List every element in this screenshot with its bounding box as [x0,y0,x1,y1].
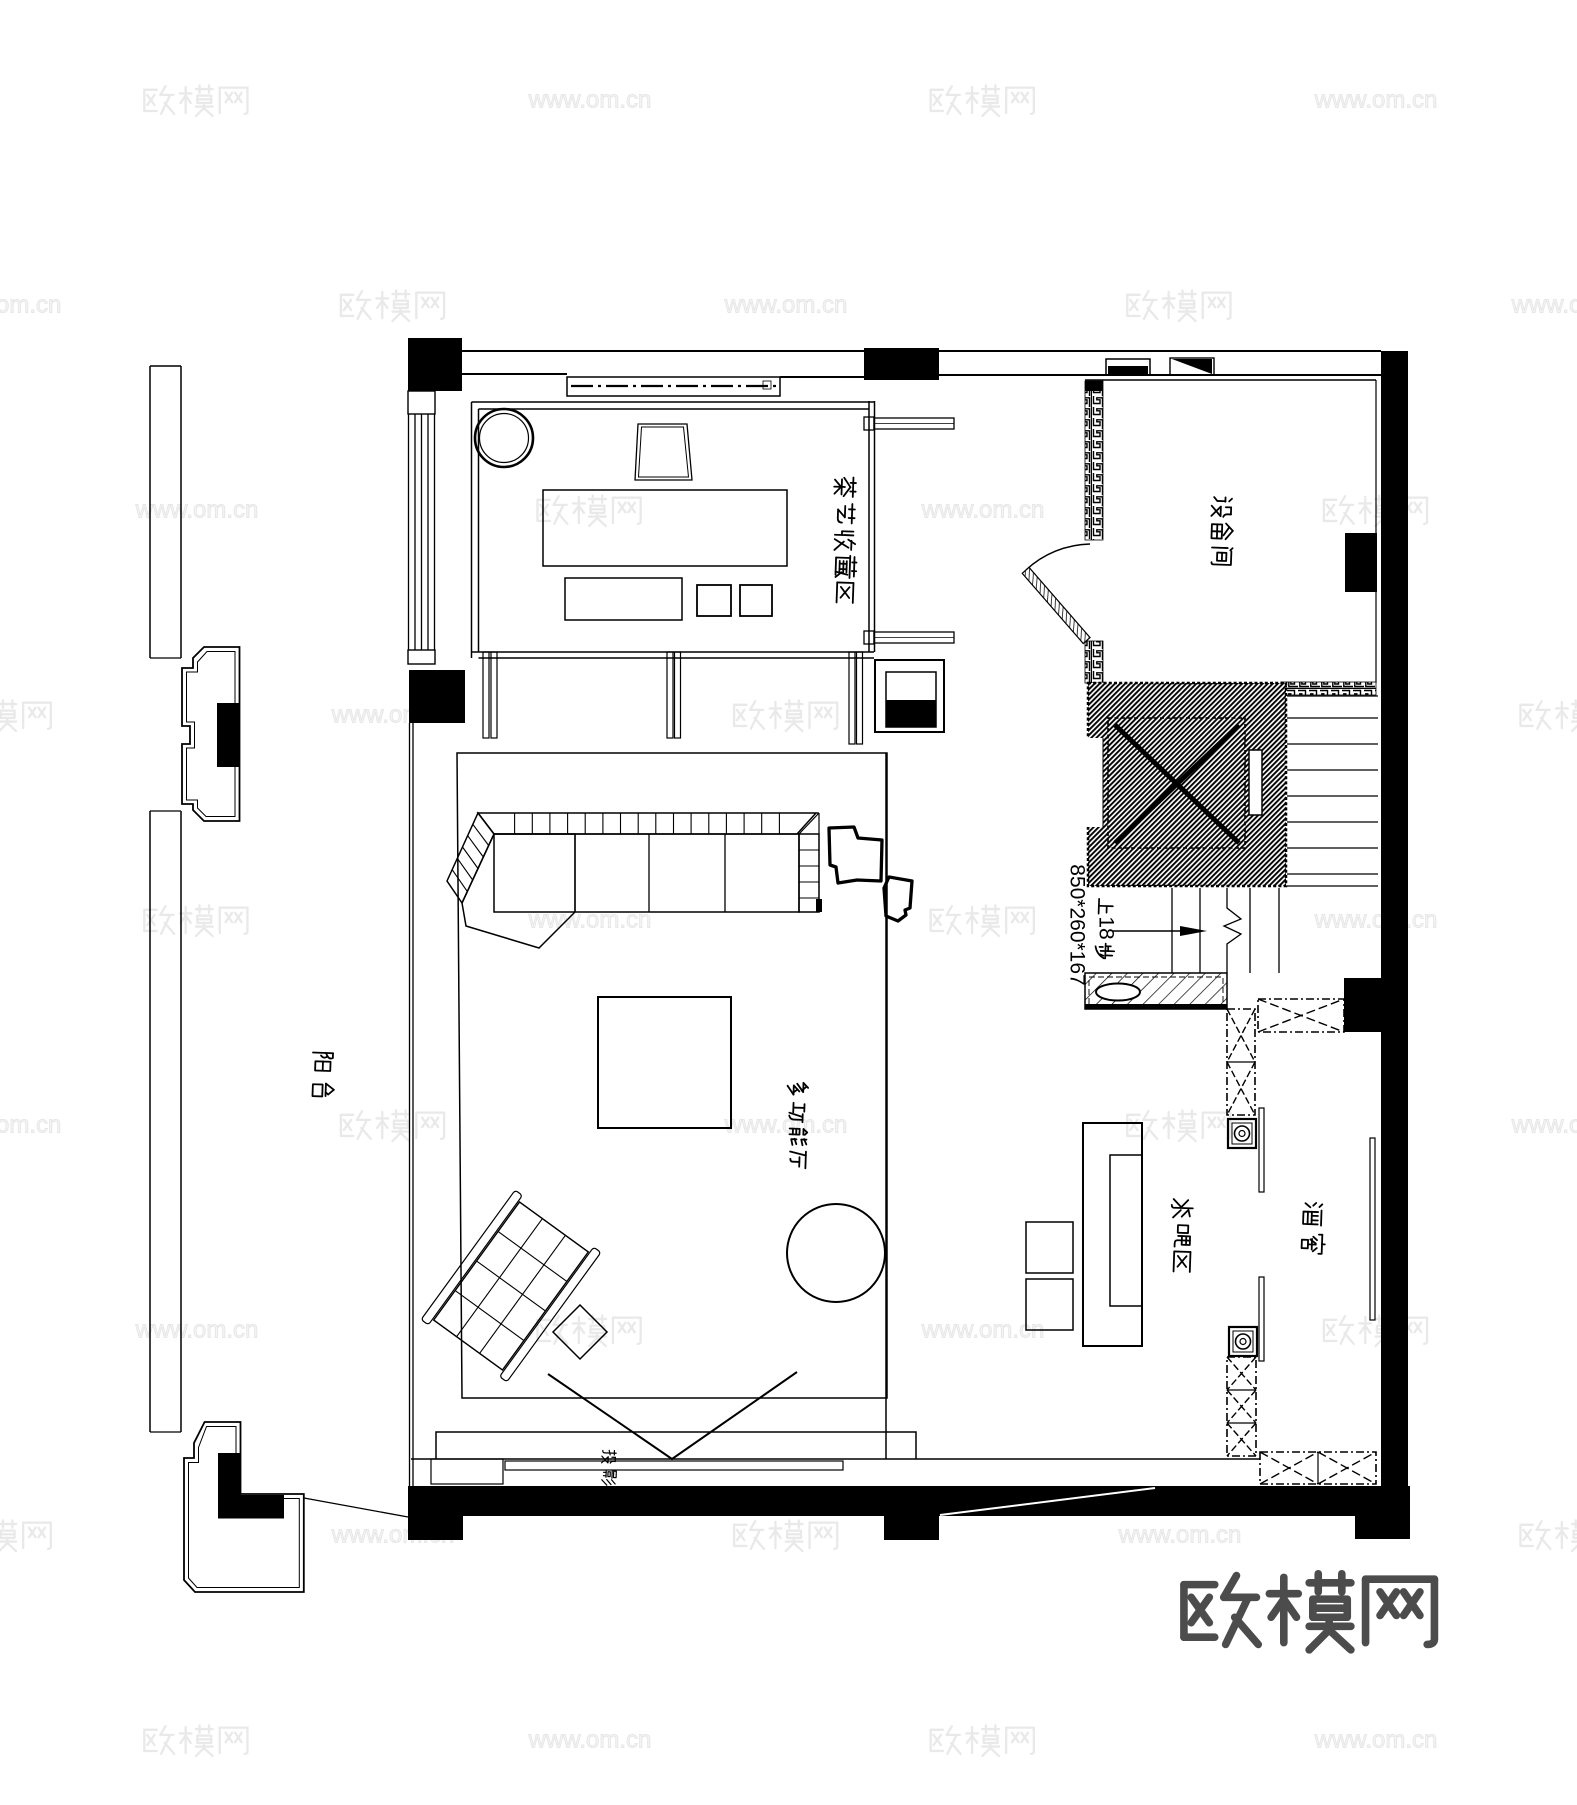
svg-text:www.om.cn: www.om.cn [724,291,848,318]
svg-text:www.om.cn: www.om.cn [0,291,61,318]
svg-text:www.om.cn: www.om.cn [1314,86,1438,113]
svg-text:www.om.cn: www.om.cn [0,1111,61,1138]
svg-text:www.om.cn: www.om.cn [1314,1726,1438,1753]
svg-text:www.om.cn: www.om.cn [528,1726,652,1753]
svg-text:www.om.cn: www.om.cn [1511,291,1577,318]
svg-text:www.om.cn: www.om.cn [135,1316,259,1343]
svg-text:www.om.cn: www.om.cn [135,496,259,523]
svg-text:www.om.cn: www.om.cn [528,86,652,113]
svg-text:www.om.cn: www.om.cn [724,1111,848,1138]
svg-text:18: 18 [1094,916,1117,939]
svg-text:www.om.cn: www.om.cn [1118,1521,1242,1548]
svg-text:www.om.cn: www.om.cn [1314,906,1438,933]
svg-text:www.om.cn: www.om.cn [528,906,652,933]
svg-text:www.om.cn: www.om.cn [921,496,1045,523]
svg-text:850*260*167: 850*260*167 [1065,864,1088,985]
svg-text:www.om.cn: www.om.cn [1511,1111,1577,1138]
